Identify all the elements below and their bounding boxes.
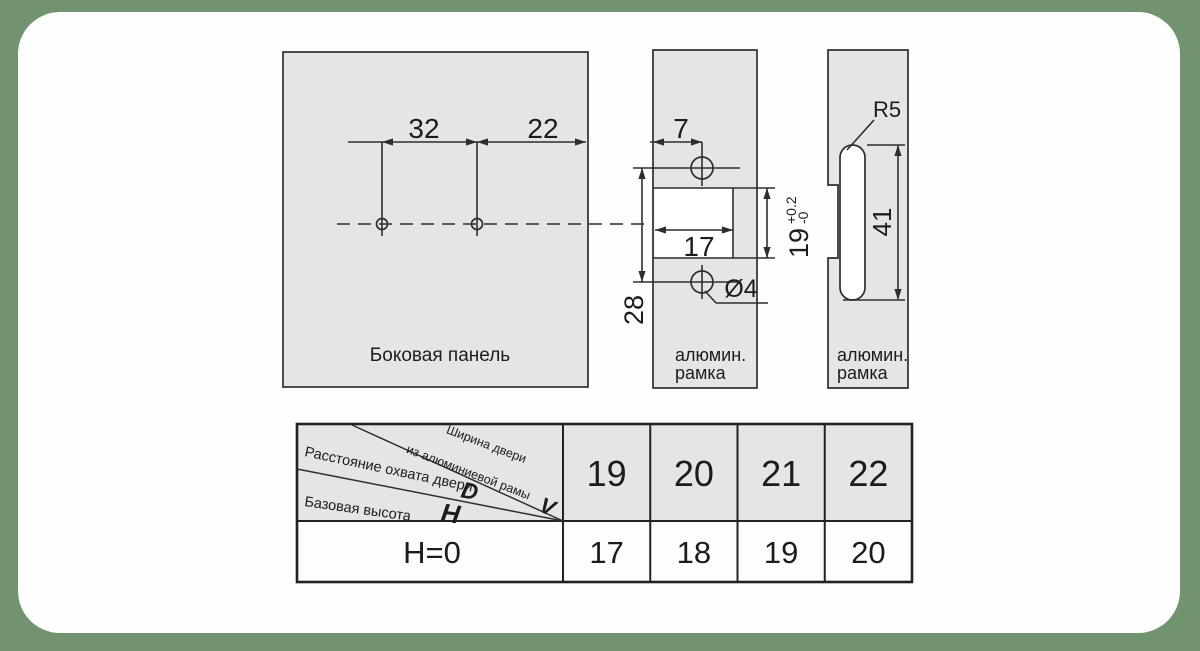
dim-22-label: 22: [527, 113, 558, 144]
hinge-drawing-canvas: 32 22 Боковая панель 7: [0, 0, 1200, 651]
dim-7-label: 7: [673, 113, 689, 144]
dim-19-tol-minus: -0: [795, 211, 811, 224]
dim-19-label: 19: [784, 228, 814, 258]
side-panel-label: Боковая панель: [370, 345, 511, 366]
frame-front-label-1: алюмин.: [675, 345, 746, 365]
row-value-1: 17: [589, 535, 623, 570]
col-header-22: 22: [848, 453, 888, 494]
frame-side-label-1: алюмин.: [837, 345, 908, 365]
dim-28-label: 28: [619, 295, 649, 325]
frame-front-label-2: рамка: [675, 363, 727, 383]
dim-32-label: 32: [408, 113, 439, 144]
row-label-h0: H=0: [403, 535, 461, 570]
side-panel-outline: [283, 52, 588, 387]
dim-17-label: 17: [683, 231, 714, 262]
r5-label: R5: [873, 97, 901, 122]
row-value-4: 20: [851, 535, 885, 570]
col-header-20: 20: [674, 453, 714, 494]
dim-41-label: 41: [867, 208, 897, 237]
col-header-21: 21: [761, 453, 801, 494]
frame-side-view: R5 41 алюмин. рамка: [828, 50, 908, 388]
row-value-3: 19: [764, 535, 798, 570]
dia4-label: Ø4: [724, 275, 757, 303]
frame-side-label-2: рамка: [837, 363, 889, 383]
row-value-2: 18: [677, 535, 711, 570]
col-header-19: 19: [587, 453, 627, 494]
hinge-slot: [840, 145, 865, 300]
